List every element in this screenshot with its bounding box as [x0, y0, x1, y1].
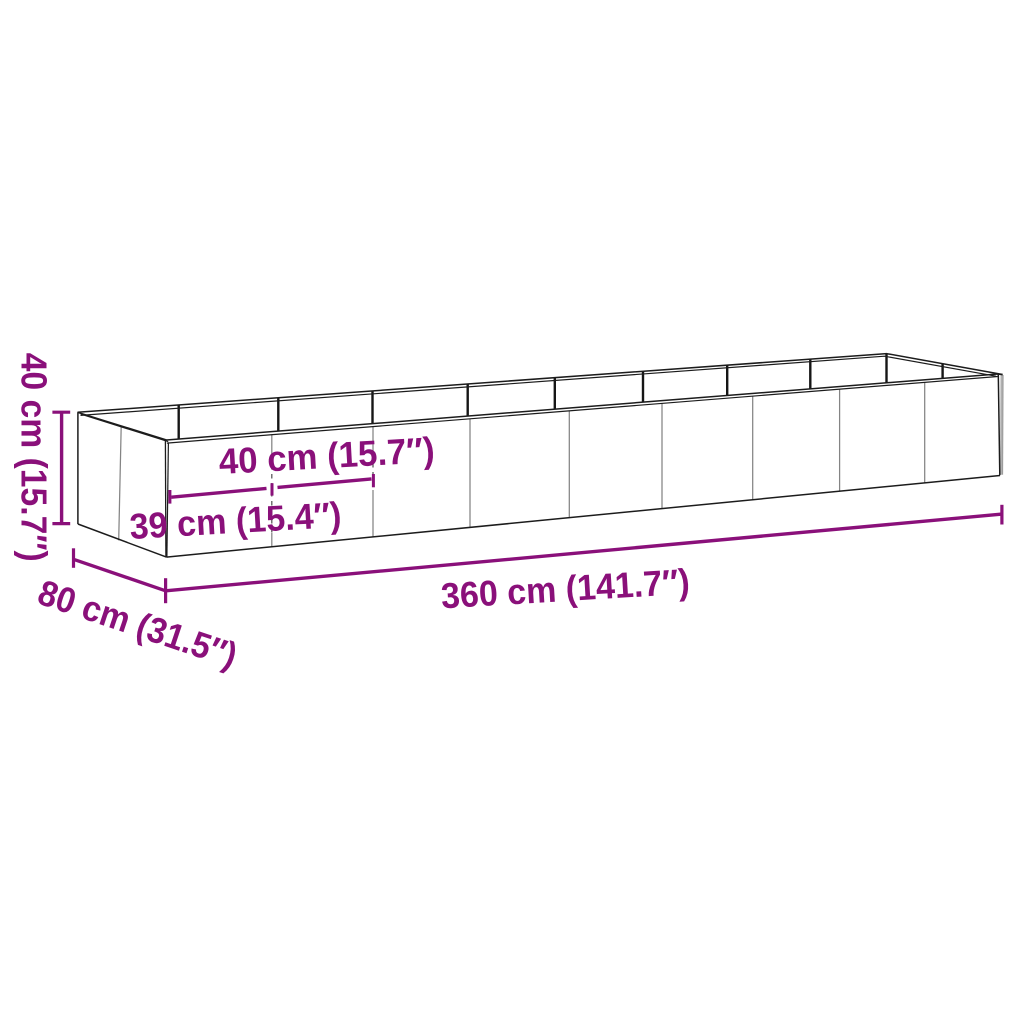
svg-text:40 cm (15.7″): 40 cm (15.7″) — [13, 353, 54, 562]
